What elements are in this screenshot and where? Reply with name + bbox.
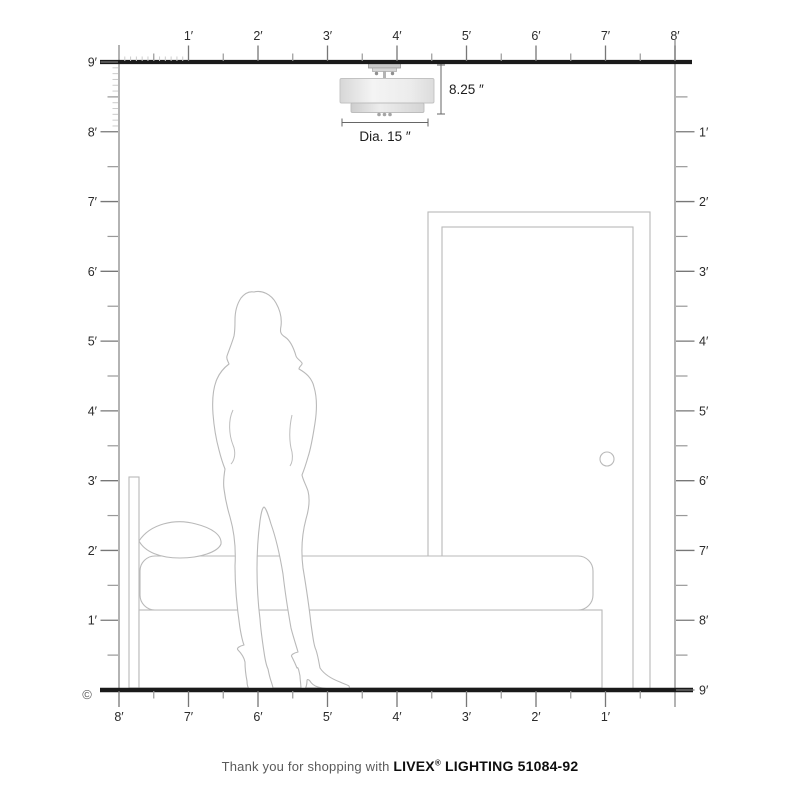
top-ruler: 1′2′3′4′5′6′7′8′ — [125, 29, 681, 61]
ruler-label: 5′ — [699, 404, 709, 418]
ruler-label: 3′ — [699, 265, 709, 279]
ruler-label: 1′ — [601, 710, 611, 724]
ruler-label: 4′ — [392, 710, 402, 724]
copyright-symbol: © — [82, 687, 92, 702]
finial-dot — [377, 113, 381, 117]
diameter-dimension-label: Dia. 15 ″ — [359, 129, 411, 144]
left-ruler: 9′8′7′6′5′4′3′2′1′ — [88, 56, 118, 656]
ruler-label: 9′ — [88, 56, 98, 70]
ruler-label: 4′ — [699, 335, 709, 349]
fixture-canopy-lower — [373, 68, 397, 72]
product-dimension-diagram: 8.25 ″ Dia. 15 ″ 1′2′3′4′5′6′7′8′ 9′8′7′… — [0, 0, 800, 800]
ruler-label: 1′ — [88, 614, 98, 628]
mattress — [140, 556, 593, 610]
ruler-label: 3′ — [323, 29, 333, 43]
caption-model: LIGHTING 51084-92 — [441, 758, 578, 774]
ruler-label: 5′ — [462, 29, 472, 43]
canopy-screw-right — [391, 72, 394, 75]
diameter-dimension — [342, 119, 428, 127]
ruler-label: 7′ — [601, 29, 611, 43]
headboard-post — [129, 477, 139, 688]
canopy-screw-left — [375, 72, 378, 75]
height-dimension — [437, 63, 445, 114]
ruler-label: 7′ — [88, 195, 98, 209]
caption-brand: LIVEX — [393, 758, 434, 774]
ruler-label: 3′ — [88, 474, 98, 488]
drum-shade-upper — [340, 79, 434, 104]
ruler-label: 8′ — [88, 125, 98, 139]
bottom-ruler: 8′7′6′5′4′3′2′1′ — [114, 691, 640, 724]
ruler-label: 2′ — [88, 544, 98, 558]
ruler-label: 8′ — [670, 29, 680, 43]
ruler-label: 4′ — [392, 29, 402, 43]
ruler-label: 3′ — [462, 710, 472, 724]
light-fixture — [340, 63, 434, 116]
ruler-label: 2′ — [699, 195, 709, 209]
ruler-label: 5′ — [323, 710, 333, 724]
finial-dot — [383, 113, 387, 117]
right-ruler: 1′2′3′4′5′6′7′8′9′ — [676, 97, 709, 698]
caption: Thank you for shopping with LIVEX® LIGHT… — [0, 758, 800, 774]
ruler-label: 9′ — [699, 684, 709, 698]
bed-base — [139, 610, 602, 688]
ruler-label: 7′ — [699, 544, 709, 558]
height-dimension-label: 8.25 ″ — [449, 82, 484, 97]
ruler-label: 1′ — [699, 125, 709, 139]
caption-prefix: Thank you for shopping with — [222, 759, 394, 774]
ruler-label: 2′ — [253, 29, 263, 43]
ruler-label: 6′ — [88, 265, 98, 279]
ruler-label: 6′ — [253, 710, 263, 724]
ruler-label: 2′ — [531, 710, 541, 724]
ruler-label: 7′ — [184, 710, 194, 724]
ruler-label: 8′ — [699, 614, 709, 628]
ruler-label: 5′ — [88, 335, 98, 349]
ruler-label: 1′ — [184, 29, 194, 43]
door-knob — [600, 452, 614, 466]
drum-shade-lower — [351, 103, 424, 113]
ruler-label: 4′ — [88, 404, 98, 418]
ruler-label: 6′ — [699, 474, 709, 488]
scene-canvas: 8.25 ″ Dia. 15 ″ 1′2′3′4′5′6′7′8′ 9′8′7′… — [0, 0, 800, 745]
finial-dot — [388, 113, 392, 117]
ruler-label: 6′ — [531, 29, 541, 43]
ruler-label: 8′ — [114, 710, 124, 724]
pillow — [139, 522, 221, 558]
